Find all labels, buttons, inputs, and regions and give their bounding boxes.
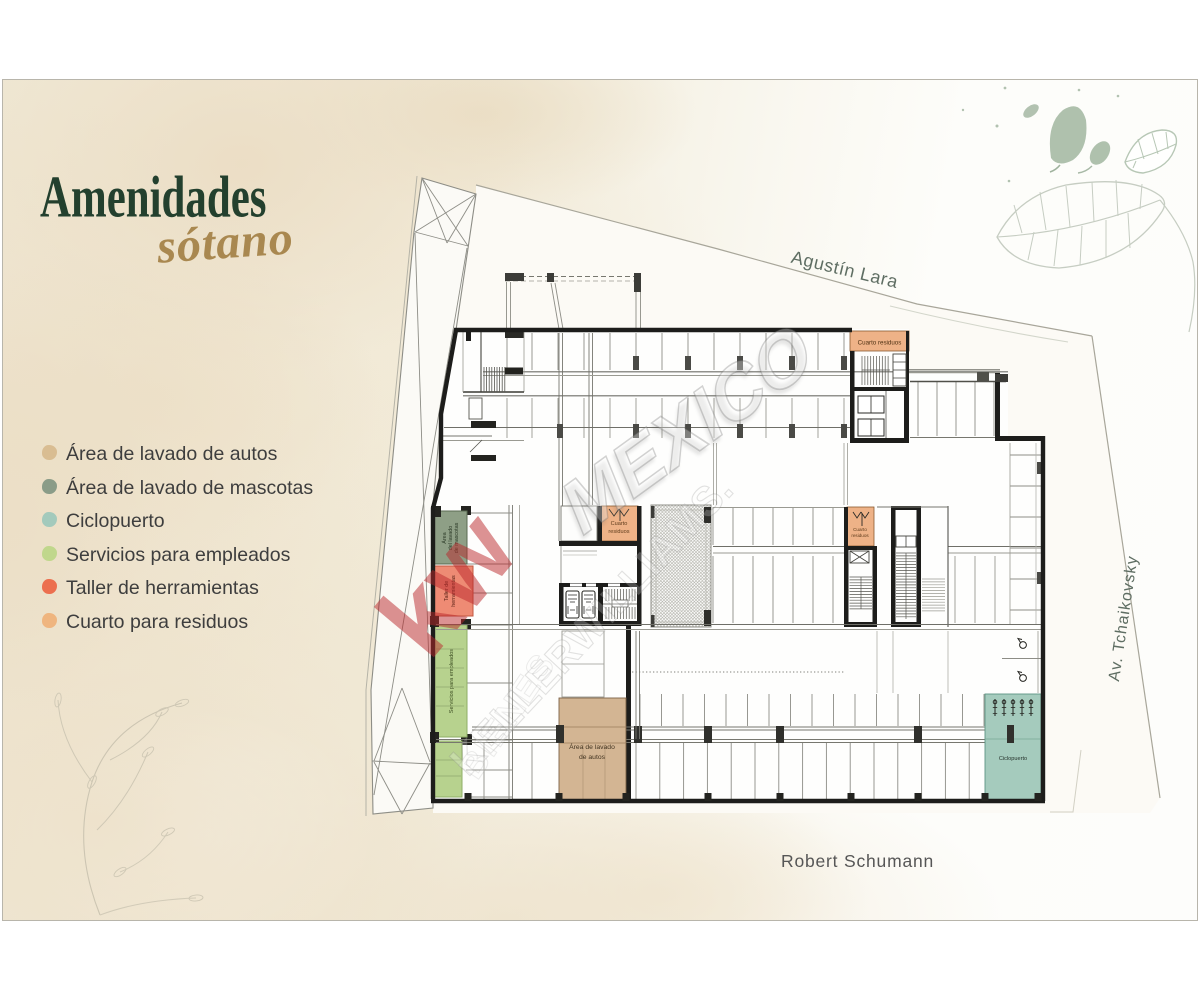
svg-text:Cuarto residuos: Cuarto residuos — [858, 340, 902, 347]
svg-text:Área de lavado: Área de lavado — [569, 742, 615, 751]
svg-text:Cuarto: Cuarto — [853, 527, 867, 532]
svg-text:de autos: de autos — [579, 754, 606, 761]
svg-text:residuos: residuos — [851, 533, 869, 538]
svg-text:Ciclopuerto: Ciclopuerto — [999, 756, 1027, 762]
